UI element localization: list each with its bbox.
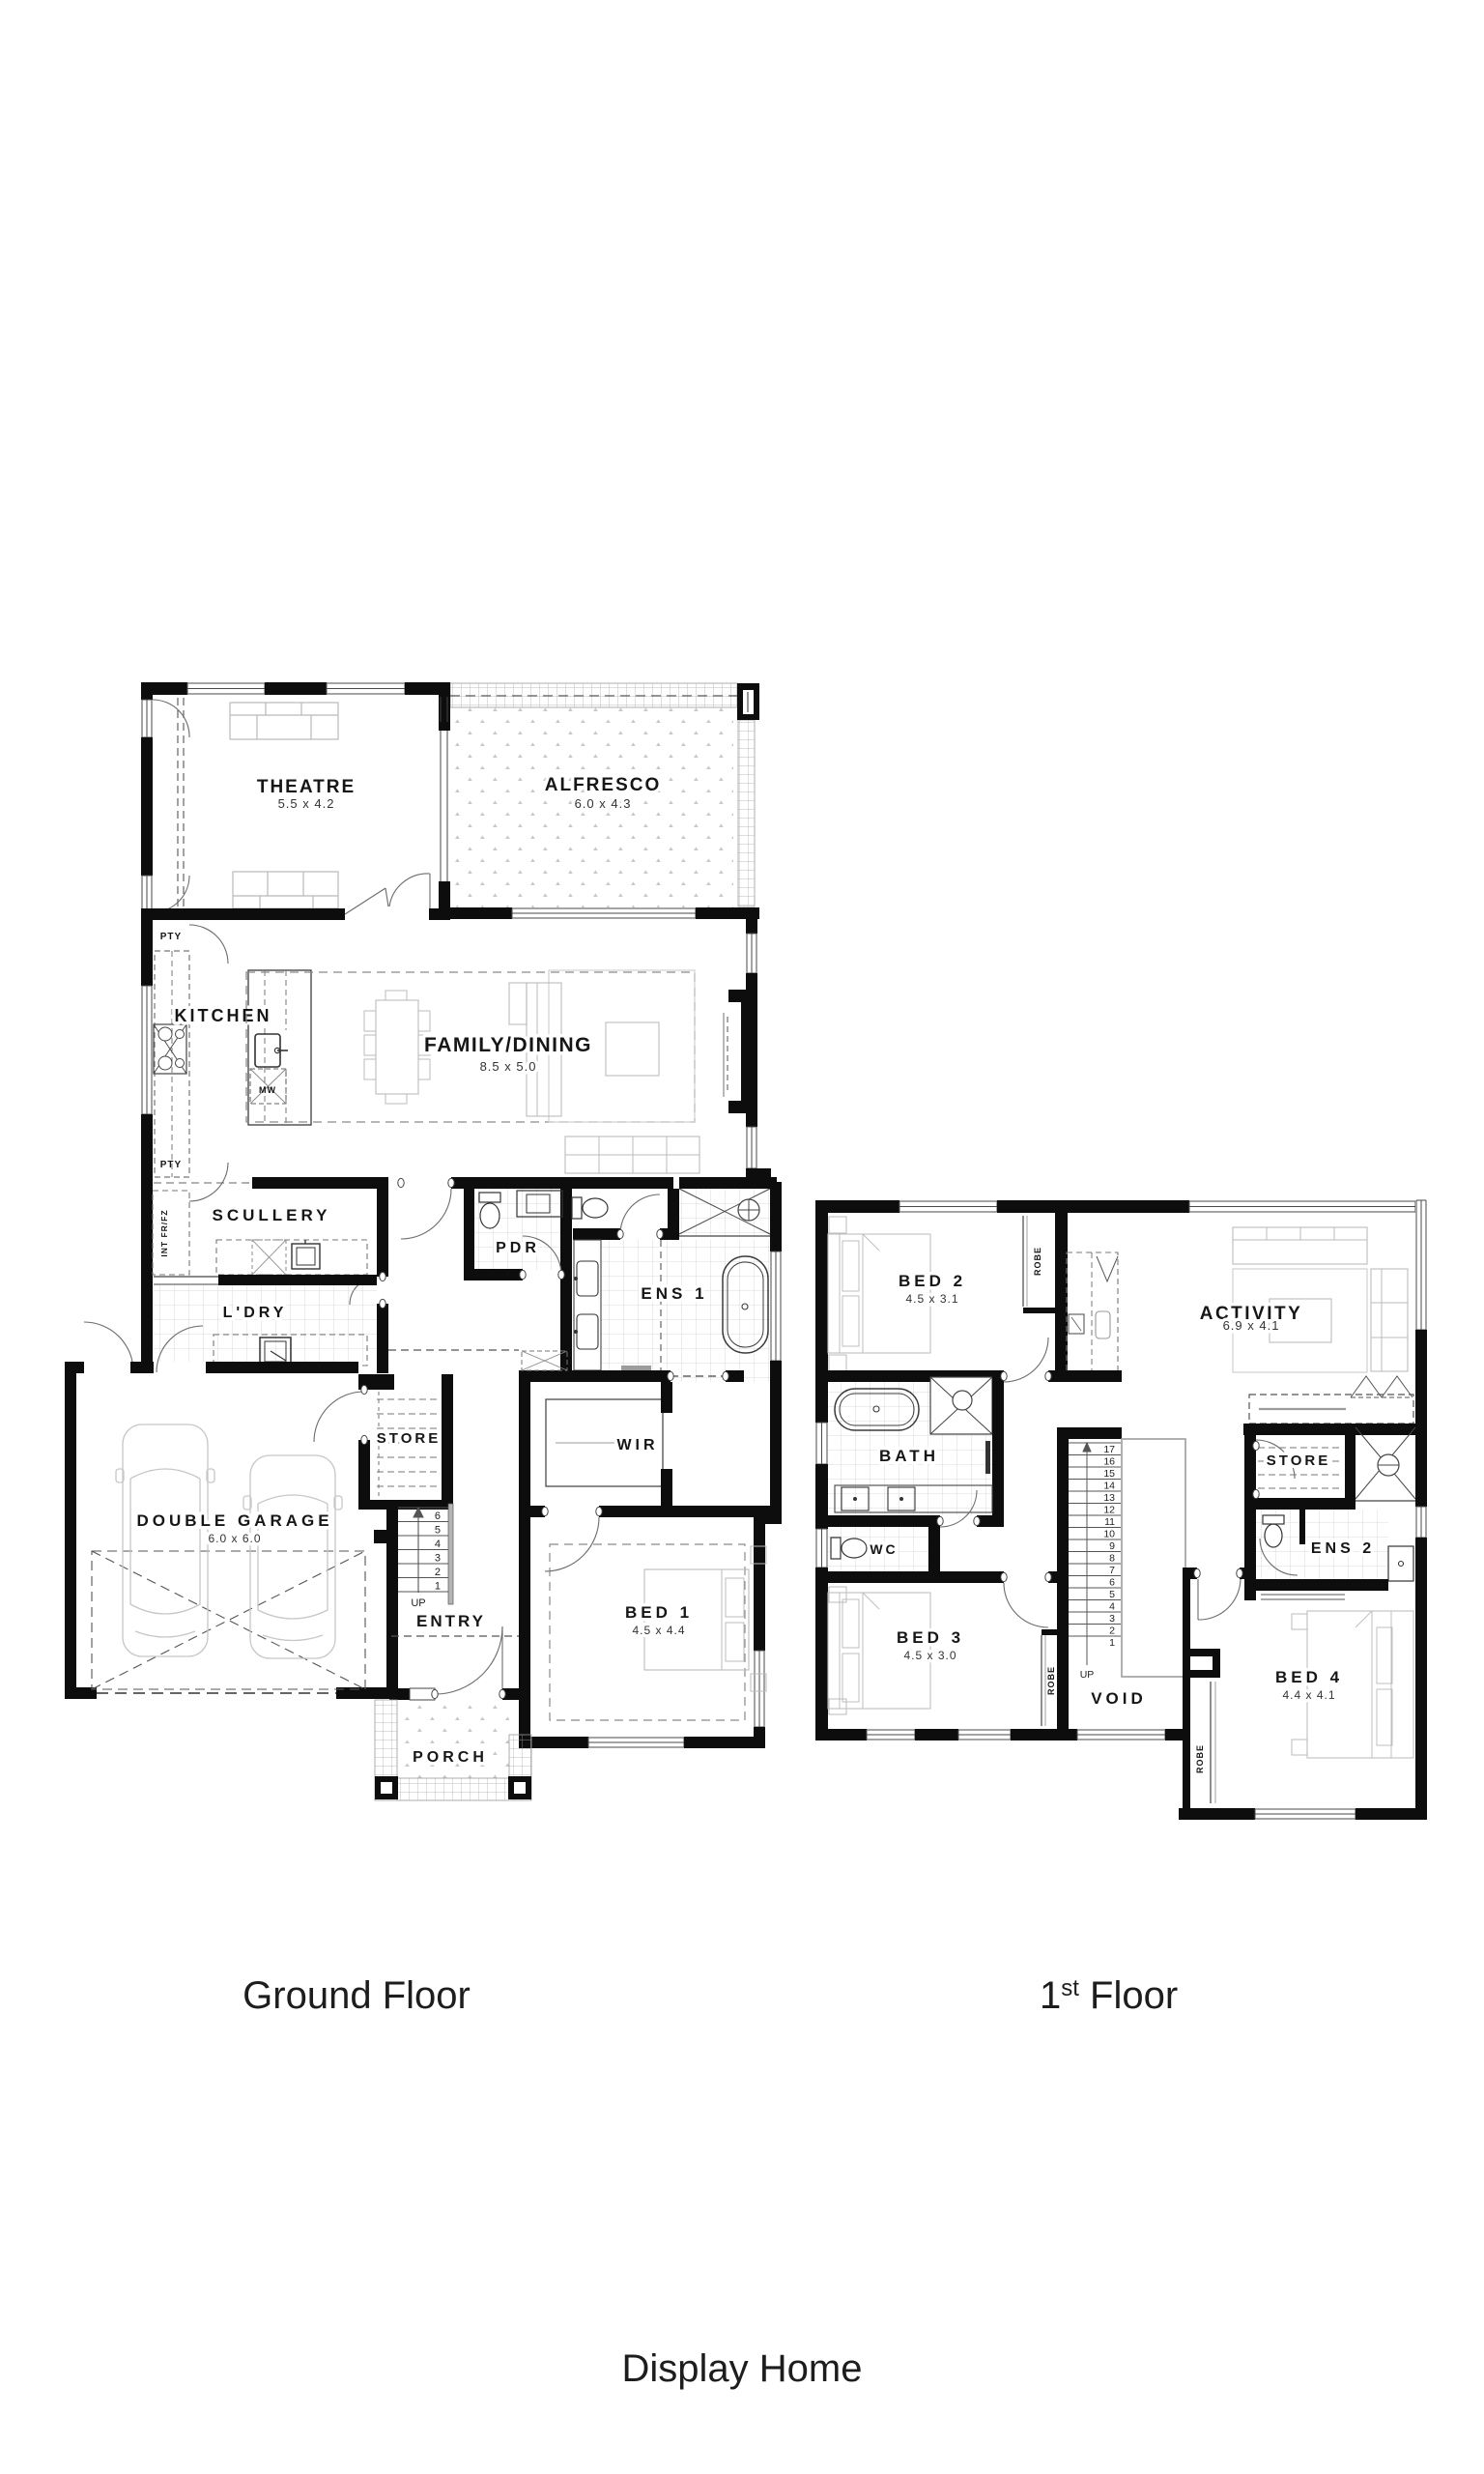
- svg-text:BED 2: BED 2: [899, 1272, 966, 1290]
- svg-text:Ground Floor: Ground Floor: [243, 1974, 471, 2017]
- svg-text:2: 2: [435, 1567, 441, 1578]
- svg-text:STORE: STORE: [1267, 1453, 1330, 1469]
- svg-text:SCULLERY: SCULLERY: [213, 1206, 331, 1224]
- svg-text:5.5 x 4.2: 5.5 x 4.2: [278, 796, 335, 811]
- svg-text:1st Floor: 1st Floor: [1040, 1974, 1178, 2017]
- svg-text:DOUBLE GARAGE: DOUBLE GARAGE: [136, 1511, 332, 1530]
- svg-text:VOID: VOID: [1091, 1689, 1147, 1708]
- svg-text:BATH: BATH: [879, 1447, 939, 1465]
- svg-text:BED 3: BED 3: [897, 1628, 964, 1647]
- svg-text:ENTRY: ENTRY: [416, 1612, 486, 1630]
- svg-text:10: 10: [1103, 1529, 1115, 1540]
- svg-text:6.9 x 4.1: 6.9 x 4.1: [1223, 1318, 1280, 1333]
- svg-text:STORE: STORE: [377, 1430, 441, 1447]
- svg-text:1: 1: [435, 1581, 441, 1593]
- svg-text:14: 14: [1103, 1481, 1115, 1492]
- svg-text:15: 15: [1103, 1468, 1115, 1480]
- svg-text:ROBE: ROBE: [1046, 1666, 1056, 1695]
- svg-text:4: 4: [1109, 1601, 1115, 1613]
- svg-text:4.5 x 3.1: 4.5 x 3.1: [905, 1292, 958, 1306]
- svg-text:6.0 x 6.0: 6.0 x 6.0: [208, 1532, 261, 1545]
- svg-text:WIR: WIR: [616, 1437, 658, 1453]
- svg-text:MW: MW: [259, 1085, 276, 1095]
- svg-text:PTY: PTY: [160, 932, 182, 942]
- svg-text:4: 4: [435, 1539, 441, 1550]
- svg-text:6: 6: [435, 1510, 441, 1522]
- svg-text:6.0 x 4.3: 6.0 x 4.3: [575, 796, 632, 811]
- svg-text:9: 9: [1109, 1540, 1115, 1552]
- svg-text:ENS 1: ENS 1: [641, 1284, 707, 1303]
- svg-text:BED 4: BED 4: [1275, 1668, 1343, 1686]
- svg-text:4.5 x 3.0: 4.5 x 3.0: [903, 1649, 956, 1662]
- svg-text:13: 13: [1103, 1492, 1115, 1504]
- svg-text:16: 16: [1103, 1456, 1115, 1468]
- svg-text:INT FR/FZ: INT FR/FZ: [159, 1209, 169, 1256]
- svg-text:8.5 x 5.0: 8.5 x 5.0: [480, 1059, 537, 1074]
- svg-text:4.4 x 4.1: 4.4 x 4.1: [1282, 1688, 1335, 1702]
- svg-text:ROBE: ROBE: [1033, 1247, 1042, 1276]
- svg-text:PTY: PTY: [160, 1160, 182, 1170]
- svg-text:ALFRESCO: ALFRESCO: [545, 775, 662, 795]
- svg-text:FAMILY/DINING: FAMILY/DINING: [424, 1034, 592, 1056]
- svg-text:3: 3: [1109, 1613, 1115, 1625]
- svg-text:UP: UP: [411, 1597, 425, 1609]
- svg-text:PORCH: PORCH: [413, 1749, 488, 1766]
- svg-text:PDR: PDR: [496, 1240, 540, 1256]
- svg-text:BED 1: BED 1: [625, 1603, 693, 1622]
- svg-text:WC: WC: [870, 1541, 898, 1557]
- svg-text:11: 11: [1104, 1516, 1115, 1528]
- svg-text:THEATRE: THEATRE: [257, 777, 356, 797]
- svg-text:Display Home: Display Home: [622, 2347, 863, 2390]
- svg-text:ENS 2: ENS 2: [1311, 1540, 1375, 1557]
- svg-text:4.5 x 4.4: 4.5 x 4.4: [632, 1624, 685, 1637]
- svg-text:8: 8: [1109, 1553, 1115, 1565]
- svg-text:17: 17: [1103, 1444, 1115, 1455]
- svg-text:1: 1: [1109, 1637, 1115, 1649]
- svg-text:UP: UP: [1080, 1669, 1095, 1681]
- svg-text:5: 5: [1109, 1589, 1115, 1600]
- svg-text:6: 6: [1109, 1577, 1115, 1589]
- svg-text:ROBE: ROBE: [1195, 1744, 1205, 1773]
- svg-text:L'DRY: L'DRY: [223, 1305, 288, 1321]
- svg-text:KITCHEN: KITCHEN: [175, 1006, 272, 1025]
- svg-text:2: 2: [1109, 1625, 1115, 1637]
- svg-text:7: 7: [1109, 1565, 1115, 1576]
- svg-text:12: 12: [1103, 1505, 1115, 1516]
- svg-text:3: 3: [435, 1553, 441, 1565]
- svg-text:5: 5: [435, 1525, 441, 1537]
